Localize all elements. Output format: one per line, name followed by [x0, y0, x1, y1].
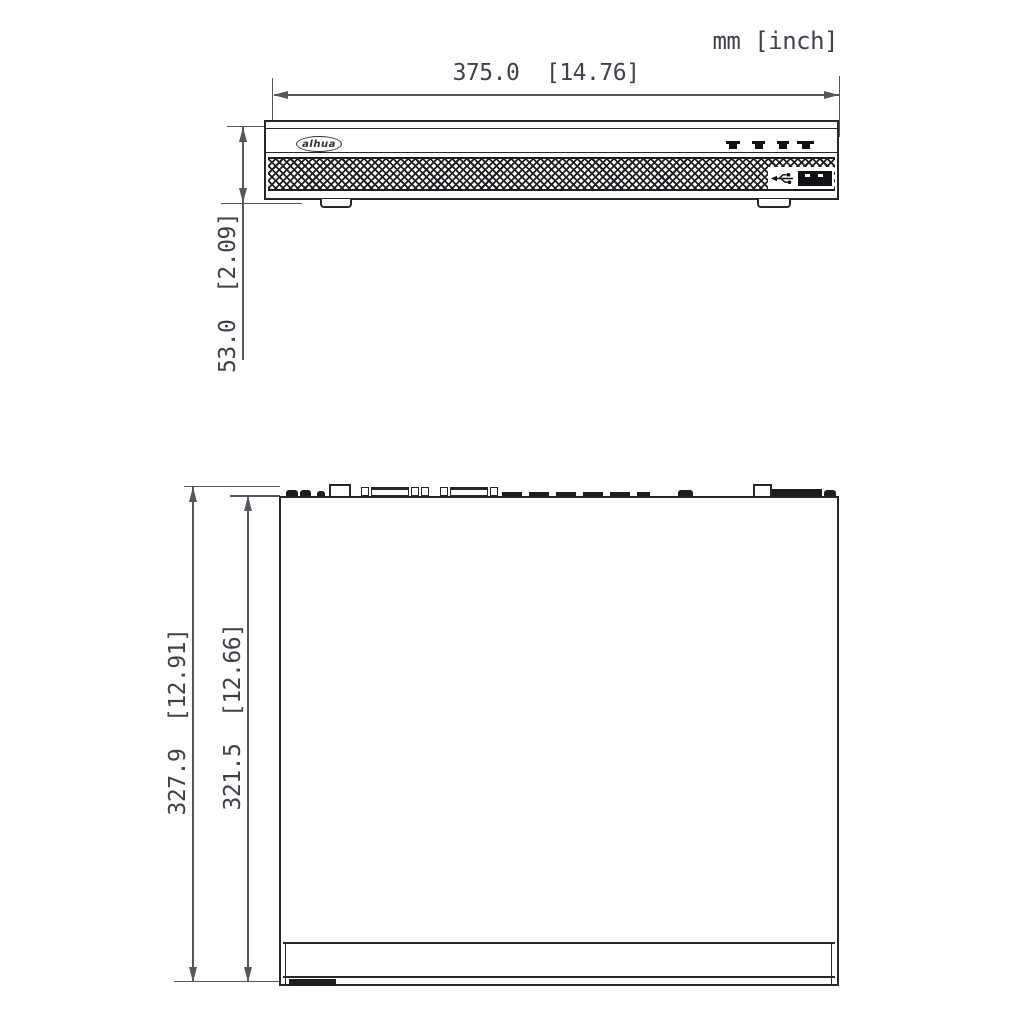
- device-foot: [757, 199, 791, 208]
- rear-connector-vga: [450, 487, 488, 496]
- front-view-panel: alhua: [264, 120, 839, 200]
- arrowhead-down-icon: [189, 967, 197, 982]
- rear-connector: [490, 487, 498, 496]
- extension-line: [184, 486, 280, 487]
- arrowhead-down-icon: [239, 188, 247, 203]
- usb-area: [768, 167, 834, 189]
- front-bezel-line: [283, 942, 835, 944]
- front-width-dimension-label: 375.0 [14.76]: [396, 60, 696, 86]
- usb-icon: [771, 172, 795, 185]
- rear-connector: [440, 487, 448, 496]
- front-height-dimension-label: 53.0 [2.09]: [215, 213, 241, 373]
- extension-line: [230, 495, 280, 496]
- rear-connector: [329, 484, 351, 496]
- dahua-logo: alhua: [296, 136, 342, 152]
- top-outer-depth-dimension-label: 327.9 [12.91]: [165, 612, 191, 832]
- dimension-drawing: mm [inch] 375.0 [14.76] 53.0 [2.09] alhu…: [0, 0, 1024, 1024]
- arrowhead-up-icon: [244, 496, 252, 511]
- device-foot: [320, 199, 352, 208]
- bezel-side-seam: [831, 943, 832, 985]
- front-bezel-line: [283, 976, 835, 978]
- panel-top-groove-line: [266, 128, 837, 129]
- dimension-line: [192, 487, 193, 982]
- units-label: mm [inch]: [660, 27, 838, 55]
- dimension-line: [247, 496, 248, 982]
- extension-line: [839, 76, 840, 137]
- rear-connector: [753, 484, 772, 496]
- arrowhead-up-icon: [239, 127, 247, 142]
- extension-line: [272, 78, 273, 121]
- rear-connector: [361, 487, 369, 496]
- led-indicator-icon: [752, 141, 765, 149]
- bezel-side-seam: [285, 943, 286, 985]
- arrowhead-down-icon: [244, 967, 252, 982]
- bottom-foot-pad: [289, 979, 336, 986]
- led-indicator-icon: [797, 141, 814, 149]
- panel-groove-line: [266, 152, 837, 153]
- rear-connector: [421, 487, 429, 496]
- ventilation-mesh: [268, 157, 835, 191]
- arrowhead-left-icon: [273, 91, 288, 99]
- usb-port: [798, 171, 832, 186]
- dimension-line: [274, 94, 839, 95]
- rear-connector-bar: [772, 489, 822, 496]
- rear-connector-vga: [371, 487, 409, 496]
- led-indicator-icon: [777, 141, 789, 149]
- arrowhead-right-icon: [824, 91, 839, 99]
- top-inner-depth-dimension-label: 321.5 [12.66]: [220, 607, 246, 827]
- top-view-body: [279, 496, 839, 986]
- led-indicator-icon: [726, 141, 740, 149]
- arrowhead-up-icon: [189, 487, 197, 502]
- extension-line: [221, 203, 302, 204]
- rear-connector: [411, 487, 419, 496]
- dimension-leader-line: [242, 203, 243, 360]
